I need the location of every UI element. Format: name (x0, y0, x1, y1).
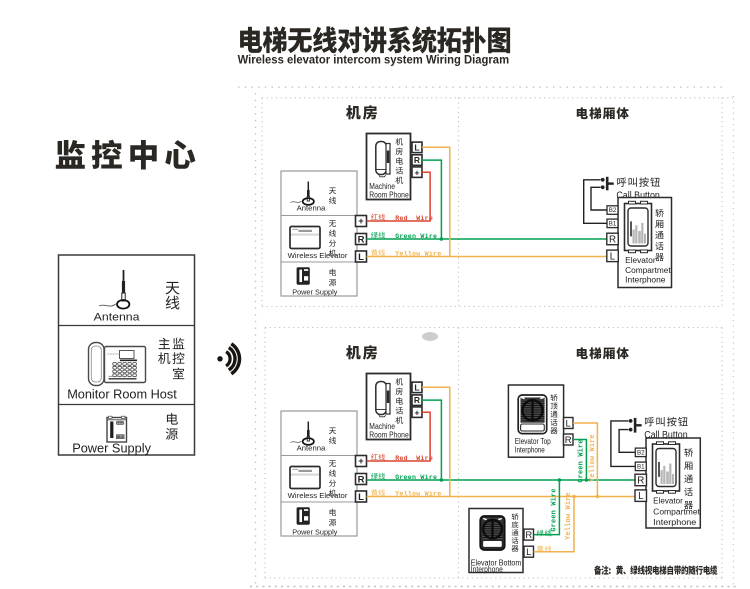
svg-text:+: + (415, 407, 420, 417)
svg-text:L: L (358, 252, 364, 263)
svg-text:R: R (414, 155, 420, 165)
svg-text:Green Wire: Green Wire (577, 439, 585, 482)
svg-text:Interphone: Interphone (625, 276, 666, 285)
svg-text:Elevator: Elevator (625, 256, 656, 265)
svg-text:Monitor Room Host: Monitor Room Host (67, 386, 177, 401)
svg-text:Green Wire: Green Wire (395, 233, 437, 240)
svg-text:R: R (414, 395, 420, 405)
svg-text:Yellow Wire: Yellow Wire (395, 490, 441, 497)
svg-text:L: L (610, 251, 616, 262)
svg-text:B2: B2 (609, 207, 617, 214)
svg-text:B2: B2 (637, 450, 645, 457)
svg-text:=====: ===== (107, 351, 121, 356)
svg-text:Power Supply: Power Supply (72, 440, 151, 455)
svg-text:Compartmet: Compartmet (653, 507, 701, 516)
svg-text:R: R (358, 234, 365, 245)
svg-text:R: R (358, 474, 365, 485)
svg-text:Yellow Wire: Yellow Wire (395, 250, 441, 257)
svg-text:Yellow Wire: Yellow Wire (565, 492, 573, 540)
svg-text:Antenna: Antenna (94, 312, 141, 324)
svg-text:Room Phone: Room Phone (369, 191, 408, 200)
svg-text:Wireless Elevator: Wireless Elevator (288, 251, 348, 260)
svg-text:Wireless elevator intercom sys: Wireless elevator intercom system Wiring… (238, 53, 510, 67)
svg-text:+: + (415, 167, 420, 177)
svg-text:Interphone: Interphone (515, 445, 545, 454)
svg-text:Antenna: Antenna (297, 444, 326, 453)
svg-text:Elevator: Elevator (653, 496, 683, 505)
svg-text:Red Wire: Red Wire (395, 215, 433, 222)
svg-text:R: R (565, 435, 572, 446)
svg-text:Red Wire: Red Wire (395, 455, 433, 462)
svg-text:Yellow Wire: Yellow Wire (589, 434, 597, 482)
svg-text:L: L (566, 418, 571, 429)
svg-text:R: R (525, 530, 532, 541)
svg-text:R: R (609, 235, 616, 246)
svg-text:+: + (358, 216, 363, 226)
svg-text:L: L (526, 547, 531, 558)
svg-text:L: L (414, 382, 419, 392)
svg-text:Interphone: Interphone (471, 565, 503, 574)
svg-text:R: R (637, 476, 644, 487)
svg-text:+: + (358, 456, 363, 466)
svg-text:Power Supply: Power Supply (292, 287, 337, 296)
svg-text:Antenna: Antenna (297, 204, 326, 213)
svg-text:Compartmet: Compartmet (625, 266, 671, 275)
svg-text:Room Phone: Room Phone (369, 431, 408, 440)
svg-text:Interphone: Interphone (653, 518, 697, 527)
svg-text:L: L (358, 492, 364, 503)
svg-text:Green Wire: Green Wire (395, 474, 437, 481)
svg-text:B1: B1 (637, 464, 645, 471)
svg-text:L: L (414, 142, 419, 152)
svg-text:L: L (638, 491, 644, 502)
svg-text:B1: B1 (609, 221, 617, 228)
svg-text:Power Supply: Power Supply (292, 527, 337, 536)
svg-text:Green Wire: Green Wire (551, 488, 559, 531)
svg-text:Wireless Elevator: Wireless Elevator (288, 491, 348, 500)
